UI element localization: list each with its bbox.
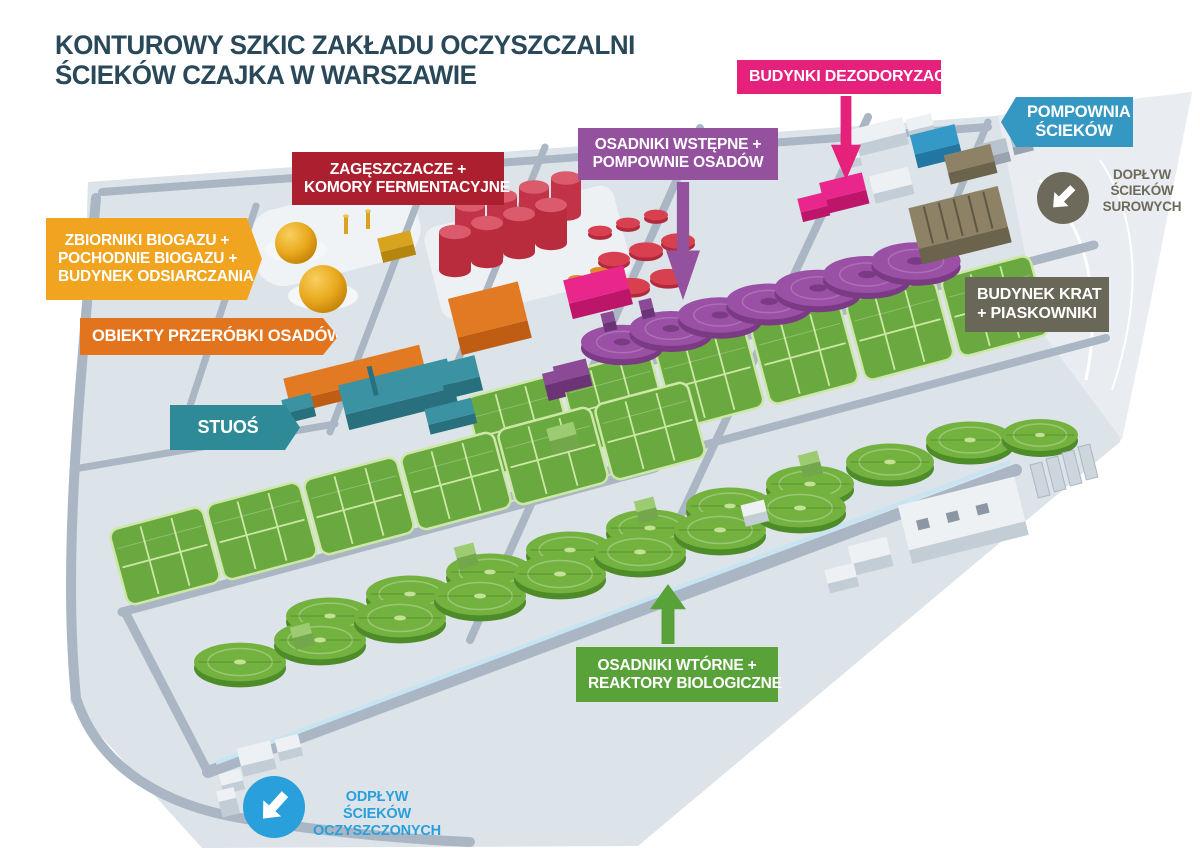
clarifier-center [663,325,680,332]
callout-label: OBIEKTY PRZERÓBKI OSADÓW [92,327,312,346]
clarifier-center [809,284,826,291]
plant-schematic-page: KONTUROWY SZKIC ZAKŁADU OCZYSZCZALNI ŚCI… [0,0,1200,848]
digester-top [471,216,503,230]
page-title-line2: ŚCIEKÓW CZAJKA W WARSZAWIE [55,60,669,90]
inflow-arrow-glyph [1046,180,1080,214]
clarifier-center [724,504,735,509]
label-doplyw-sciekow-surowych: DOPŁYW ŚCIEKÓW SUROWYCH [1092,167,1192,215]
callout-label: BUDYNKI DEZODORYZACJI [749,68,929,86]
clarifier-center [234,659,246,664]
clarifier-center [404,592,415,597]
clarifier-center [712,311,729,318]
clarifier-center [644,526,655,531]
callout-label: BUDYNEK KRAT [977,286,1097,304]
biogas-flare [366,211,370,229]
callout-obiekty-przerobki: OBIEKTY PRZERÓBKI OSADÓW [80,318,338,355]
thickener-tank [616,218,640,229]
callout-label: POMPOWNIA [1027,103,1121,122]
label-line: ŚCIEKÓW [1092,183,1192,199]
callout-label: + PIASKOWNIKI [977,305,1097,323]
clarifier-center [760,298,777,305]
callout-label: KOMORY FERMENTACYJNE [304,179,492,197]
callout-osadniki-wtorne: OSADNIKI WTÓRNE + REAKTORY BIOLOGICZNE [576,647,778,702]
clarifier-center [964,438,975,443]
label-line: OCZYSZCZONYCH [313,823,441,840]
clarifier-center [564,548,575,553]
label-odplyw-sciekow-oczyszczonych: ODPŁYW ŚCIEKÓW OCZYSZCZONYCH [313,789,441,840]
clarifier-center [314,637,326,642]
callout-label: BUDYNEK ODSIARCZANIA [58,268,236,286]
page-title-line1: KONTUROWY SZKIC ZAKŁADU OCZYSZCZALNI [55,30,669,60]
digester-base [535,236,567,250]
clarifier-center [324,614,335,619]
biogas-flare-tip [343,214,349,217]
thickener-tank [644,210,668,221]
biogas-flare-tip [365,209,371,212]
clarifier-center [554,571,566,576]
clarifier-center [884,460,895,465]
callout-budynek-krat: BUDYNEK KRAT + PIASKOWNIKI [965,277,1109,332]
callout-label: REAKTORY BIOLOGICZNE [588,675,766,693]
callout-stuos: STUOŚ [170,405,300,450]
callout-zageszczacze-komory: ZAGĘSZCZACZE + KOMORY FERMENTACYJNE [292,152,504,205]
clarifier-center [714,527,726,532]
callout-label: ZBIORNIKI BIOGAZU + [58,232,236,250]
digester-top [439,225,471,239]
callout-label: POCHODNIE BIOGAZU + [58,250,236,268]
thickener-tank [588,226,612,237]
callout-pompownia-sciekow: POMPOWNIA ŚCIEKÓW [1001,97,1133,147]
clarifier-center [634,549,646,554]
clarifier-center [394,615,406,620]
callout-label: POMPOWNIE OSADÓW [590,154,766,172]
biogas-sphere [275,222,317,264]
callout-label: ZAGĘSZCZACZE + [304,161,492,179]
biogas-flare [344,216,348,234]
digester-top [551,171,581,185]
digester-top [535,198,567,212]
callout-label: OSADNIKI WSTĘPNE + [590,136,766,154]
page-title: KONTUROWY SZKIC ZAKŁADU OCZYSZCZALNI ŚCI… [55,30,669,90]
outflow-arrow-glyph [254,786,294,827]
clarifier-center [474,593,486,598]
digester-top [519,180,549,194]
digester-base [439,263,471,277]
thickener-tank [629,242,663,257]
arrow-inflow-icon [1037,172,1089,224]
callout-zbiorniki-biogazu: ZBIORNIKI BIOGAZU + POCHODNIE BIOGAZU + … [46,218,262,300]
callout-label: STUOŚ [182,417,274,438]
label-line: ODPŁYW ŚCIEKÓW [313,789,441,823]
clarifier-center [804,482,815,487]
callout-label: OSADNIKI WTÓRNE + [588,657,766,675]
digester-top [503,207,535,221]
callout-osadniki-wstepne: OSADNIKI WSTĘPNE + POMPOWNIE OSADÓW [578,128,778,180]
thickener-tank [598,252,630,266]
clarifier-center [794,505,806,510]
digester-base [503,245,535,259]
digester-base [471,254,503,268]
biogas-sphere [299,265,347,313]
label-line: DOPŁYW [1092,167,1192,183]
clarifier-center [1035,433,1045,437]
clarifier-center [614,339,630,346]
callout-budynki-dezodoryzacji: BUDYNKI DEZODORYZACJI [737,60,941,94]
clarifier-center [484,570,495,575]
callout-label: ŚCIEKÓW [1027,122,1121,141]
label-line: SUROWYCH [1092,199,1192,215]
arrow-outflow-icon [243,776,305,838]
